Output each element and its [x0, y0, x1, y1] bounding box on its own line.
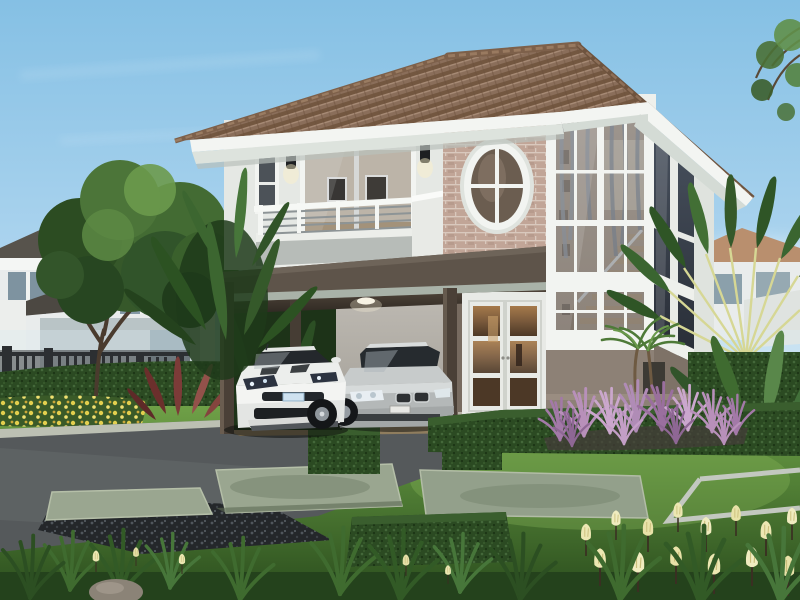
entry-door	[458, 292, 554, 424]
sedan-grille	[396, 393, 411, 403]
door-right-leaf	[507, 302, 540, 410]
side-mirror	[331, 357, 341, 363]
scene-render	[0, 0, 800, 600]
door-left-leaf	[470, 302, 503, 410]
house-render-image	[0, 0, 800, 600]
sports-car-plate	[283, 393, 304, 401]
marigold-bed	[0, 395, 148, 426]
oval-window	[460, 138, 534, 234]
sedan-plate	[390, 406, 410, 413]
